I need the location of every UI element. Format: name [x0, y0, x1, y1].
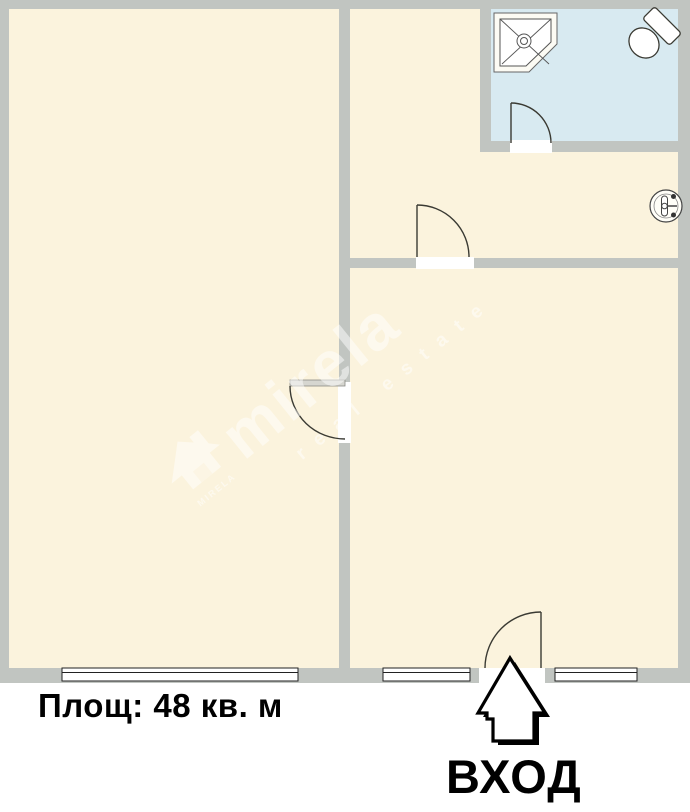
window-left	[62, 668, 298, 681]
shower-icon	[494, 13, 557, 72]
window-right	[555, 668, 637, 681]
door-opening-bathroom	[510, 140, 552, 153]
wall-vertical-main	[339, 9, 350, 668]
bathroom-wall-left	[480, 9, 491, 152]
window-middle	[383, 668, 470, 681]
sink-icon	[650, 190, 682, 222]
wall-horizontal-right	[350, 258, 678, 268]
wall-top	[0, 0, 690, 9]
wall-right	[678, 0, 690, 683]
entrance-label: ВХОД	[446, 749, 582, 804]
door-opening-left-room	[338, 382, 351, 443]
wall-left	[0, 0, 9, 683]
floor-plan-page: { "floor_plan": { "area_label": "Площ: 4…	[0, 0, 690, 812]
area-label: Площ: 48 кв. м	[38, 687, 283, 725]
door-opening-middle	[416, 257, 474, 269]
